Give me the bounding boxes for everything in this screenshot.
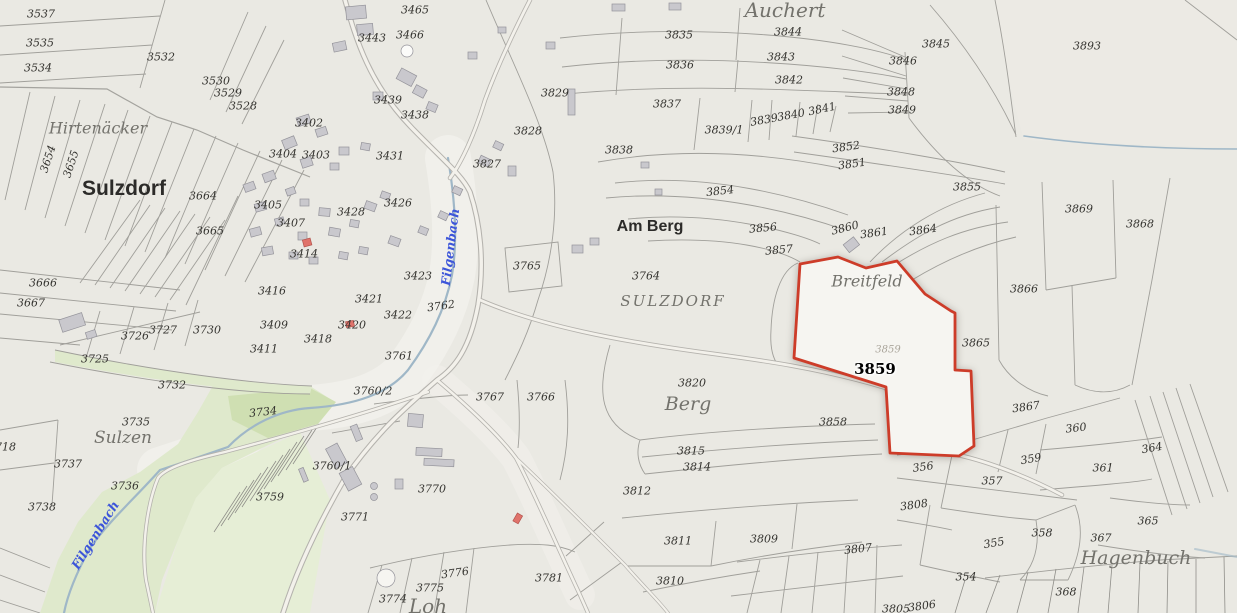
- map-canvas[interactable]: 3537353535343532353035293528365436553465…: [0, 0, 1237, 613]
